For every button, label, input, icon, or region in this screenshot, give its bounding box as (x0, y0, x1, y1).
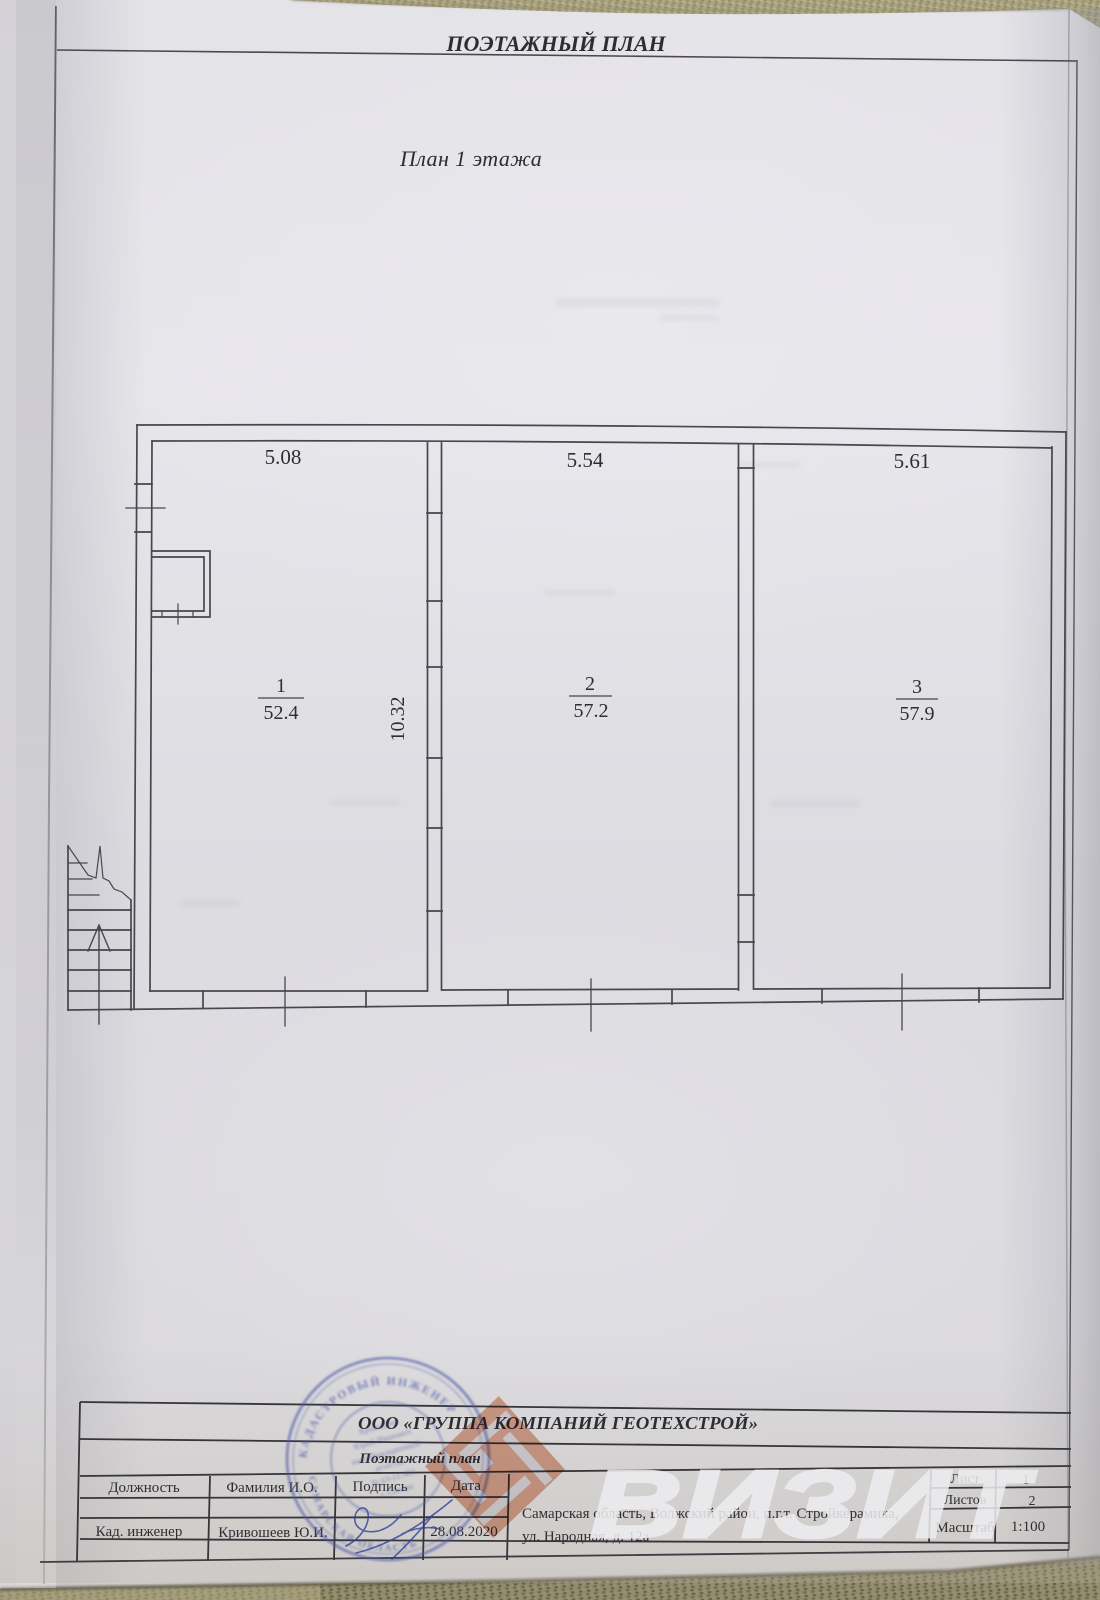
svg-text:57.9: 57.9 (900, 703, 935, 725)
svg-text:ПОЭТАЖНЫЙ ПЛАН: ПОЭТАЖНЫЙ ПЛАН (445, 31, 666, 56)
svg-text:10.32: 10.32 (387, 697, 409, 742)
svg-text:2: 2 (1029, 1494, 1036, 1509)
svg-text:5.61: 5.61 (894, 449, 931, 473)
svg-text:57.2: 57.2 (574, 700, 609, 722)
svg-text:ВИЗИТ: ВИЗИТ (590, 1451, 1037, 1558)
svg-text:Кад. инженер: Кад. инженер (96, 1524, 183, 1540)
svg-text:Кривошеев Ю.И.: Кривошеев Ю.И. (218, 1525, 327, 1541)
svg-text:Фамилия И.О.: Фамилия И.О. (226, 1480, 317, 1496)
svg-text:5.08: 5.08 (265, 445, 302, 469)
svg-text:План 1 этажа: План 1 этажа (399, 146, 542, 171)
svg-text:1: 1 (276, 675, 286, 697)
svg-text:2: 2 (585, 673, 595, 695)
svg-text:5.54: 5.54 (567, 448, 604, 472)
svg-text:Должность: Должность (108, 1480, 179, 1496)
svg-text:52.4: 52.4 (264, 702, 299, 724)
svg-text:ООО «ГРУППА КОМПАНИЙ ГЕОТЕХСТР: ООО «ГРУППА КОМПАНИЙ ГЕОТЕХСТРОЙ» (358, 1411, 758, 1433)
svg-text:3: 3 (912, 676, 922, 698)
